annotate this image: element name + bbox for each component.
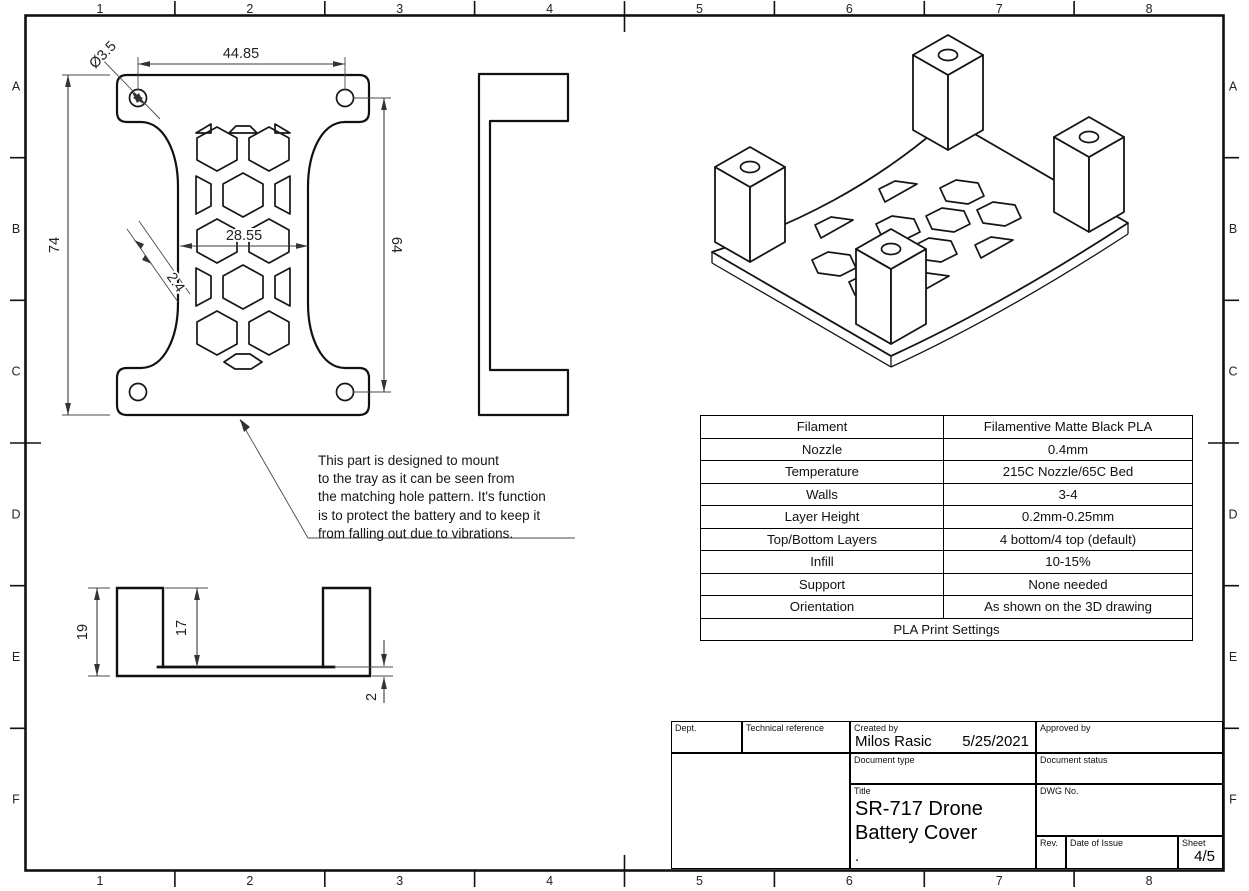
frame-column-label-top-1: 1 [96, 2, 103, 16]
title-block-document-type-cell: Document type [850, 753, 1036, 784]
side-view [479, 74, 568, 415]
setting-value: 215C Nozzle/65C Bed [944, 461, 1193, 484]
setting-label: Walls [701, 483, 944, 506]
frame-row-label-left-F: F [12, 793, 20, 807]
frame-column-label-top-8: 8 [1146, 2, 1153, 16]
frame-column-label-bottom-7: 7 [996, 874, 1003, 888]
dim-section-overall-height: 19 [75, 624, 91, 640]
table-footer-cell: PLA Print Settings [701, 618, 1193, 641]
frame-column-label-top-7: 7 [996, 2, 1003, 16]
table-row: Infill10-15% [701, 551, 1193, 574]
frame-row-label-left-E: E [12, 650, 20, 664]
frame-row-label-left-A: A [12, 79, 21, 93]
title-block-dwg-no-cell: DWG No. [1036, 784, 1223, 836]
frame-column-label-bottom-8: 8 [1146, 874, 1153, 888]
frame-column-label-bottom-5: 5 [696, 874, 703, 888]
setting-value: None needed [944, 573, 1193, 596]
setting-label: Layer Height [701, 506, 944, 529]
dim-section-base-thickness: 2 [364, 693, 380, 701]
frame-column-label-bottom-2: 2 [246, 874, 253, 888]
side-view-outline [479, 74, 568, 415]
frame-column-label-bottom-1: 1 [96, 874, 103, 888]
design-note-line-1: This part is designed to mount [318, 452, 598, 470]
title-block-created-by-cell: Created by Milos Rasic 5/25/2021 [850, 721, 1036, 753]
frame-row-label-left-C: C [11, 365, 20, 379]
drawing-title-line2: Battery Cover [855, 822, 983, 846]
frame-column-label-bottom-4: 4 [546, 874, 553, 888]
technical-reference-label: Technical reference [746, 723, 824, 733]
created-date: 5/25/2021 [962, 733, 1029, 750]
table-row: FilamentFilamentive Matte Black PLA [701, 416, 1193, 439]
frame-row-label-right-A: A [1229, 79, 1238, 93]
frame-column-label-top-6: 6 [846, 2, 853, 16]
frame-row-label-left-D: D [11, 507, 20, 521]
title-label: Title [854, 786, 871, 796]
title-block-document-status-cell: Document status [1036, 753, 1223, 784]
frame-column-label-top-2: 2 [246, 2, 253, 16]
setting-value: 0.4mm [944, 438, 1193, 461]
table-footer-row: PLA Print Settings [701, 618, 1193, 641]
section-view: 19 17 2 [75, 588, 393, 703]
design-note: This part is designed to mountto the tra… [318, 452, 598, 543]
setting-value: 3-4 [944, 483, 1193, 506]
table-row: OrientationAs shown on the 3D drawing [701, 596, 1193, 619]
title-block-technical-reference-cell: Technical reference [742, 721, 850, 753]
approved-by-label: Approved by [1040, 723, 1091, 733]
drawing-sheet: 1122334455667788AABBCCDDEEFF [0, 0, 1249, 891]
title-block-title-cell: Title SR-717 Drone Battery Cover . [850, 784, 1036, 869]
frame-column-label-top-5: 5 [696, 2, 703, 16]
frame-row-label-right-F: F [1229, 793, 1237, 807]
setting-value: As shown on the 3D drawing [944, 596, 1193, 619]
title-block-approved-by-cell: Approved by [1036, 721, 1223, 753]
frame-row-label-left-B: B [12, 222, 20, 236]
dim-section-inner-depth: 17 [174, 620, 190, 636]
frame-column-label-top-3: 3 [396, 2, 403, 16]
setting-value: 4 bottom/4 top (default) [944, 528, 1193, 551]
title-block-empty-cell [671, 753, 850, 869]
frame-column-label-bottom-3: 3 [396, 874, 403, 888]
dim-hole-diameter: Ø3.5 [86, 38, 119, 72]
dwg-no-label: DWG No. [1040, 786, 1079, 796]
design-note-line-4: is to protect the battery and to keep it [318, 507, 598, 525]
date-of-issue-label: Date of Issue [1070, 838, 1123, 848]
table-row: Top/Bottom Layers4 bottom/4 top (default… [701, 528, 1193, 551]
setting-label: Orientation [701, 596, 944, 619]
title-block-sheet-cell: Sheet 4/5 [1178, 836, 1223, 869]
dim-hole-spacing-vertical: 64 [388, 237, 404, 253]
sheet-value: 4/5 [1194, 848, 1215, 865]
dept-label: Dept. [675, 723, 697, 733]
frame-row-label-right-D: D [1228, 507, 1237, 521]
setting-value: 0.2mm-0.25mm [944, 506, 1193, 529]
setting-value: 10-15% [944, 551, 1193, 574]
drawing-title-line1: SR-717 Drone [855, 798, 983, 822]
setting-label: Infill [701, 551, 944, 574]
title-block-date-of-issue-cell: Date of Issue [1066, 836, 1178, 869]
dim-waist-width: 28.55 [226, 228, 262, 244]
frame-row-label-right-C: C [1228, 365, 1237, 379]
document-type-label: Document type [854, 755, 915, 765]
dim-overall-height: 74 [47, 237, 63, 253]
setting-label: Nozzle [701, 438, 944, 461]
table-row: Walls3-4 [701, 483, 1193, 506]
table-row: Nozzle0.4mm [701, 438, 1193, 461]
frame-row-label-right-B: B [1229, 222, 1237, 236]
frame-row-label-right-E: E [1229, 650, 1237, 664]
sheet-label: Sheet [1182, 838, 1206, 848]
design-note-line-3: the matching hole pattern. It's function [318, 488, 598, 506]
setting-value: Filamentive Matte Black PLA [944, 416, 1193, 439]
table-row: Layer Height0.2mm-0.25mm [701, 506, 1193, 529]
frame-column-label-bottom-6: 6 [846, 874, 853, 888]
setting-label: Filament [701, 416, 944, 439]
iso-view [712, 35, 1128, 367]
setting-label: Support [701, 573, 944, 596]
print-settings-table: FilamentFilamentive Matte Black PLANozzl… [700, 415, 1193, 641]
table-row: SupportNone needed [701, 573, 1193, 596]
table-row: Temperature215C Nozzle/65C Bed [701, 461, 1193, 484]
setting-label: Temperature [701, 461, 944, 484]
design-note-line-5: from falling out due to vibrations. [318, 525, 598, 543]
section-dimensions: 19 17 2 [75, 588, 393, 703]
created-by-value: Milos Rasic [855, 733, 932, 750]
design-note-line-2: to the tray as it can be seen from [318, 470, 598, 488]
rev-label: Rev. [1040, 838, 1058, 848]
dim-hole-spacing-horizontal: 44.85 [223, 46, 259, 62]
created-by-label: Created by [854, 723, 898, 733]
frame-column-label-top-4: 4 [546, 2, 553, 16]
drawing-title: SR-717 Drone Battery Cover . [855, 798, 983, 869]
title-block-rev-cell: Rev. [1036, 836, 1066, 869]
setting-label: Top/Bottom Layers [701, 528, 944, 551]
title-block-dept-cell: Dept. [671, 721, 742, 753]
drawing-title-line3: . [855, 845, 983, 869]
document-status-label: Document status [1040, 755, 1108, 765]
